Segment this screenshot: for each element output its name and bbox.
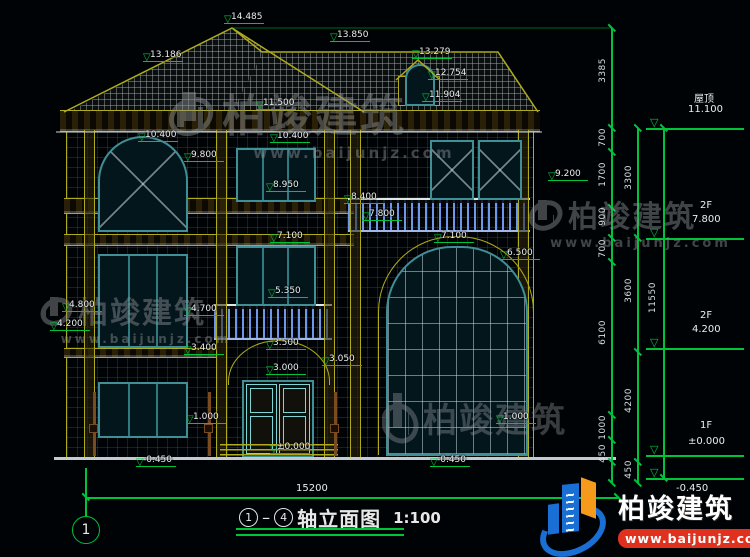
dim-marker: 3.500▽ xyxy=(266,338,306,350)
level-line xyxy=(646,128,744,130)
level-triangle-icon: ▽ xyxy=(412,50,420,59)
dim-chain-line xyxy=(663,128,665,478)
chain-dim-label: 1700 xyxy=(598,162,608,187)
dim-marker: 10.400▽ xyxy=(270,131,310,143)
chain-dim-label: 700 xyxy=(598,239,608,258)
chain-dim-label: 900 xyxy=(598,207,608,226)
axis-start-bubble: 1 xyxy=(239,508,258,527)
footer-brand-logo: 柏竣建筑 www.baijunjz.com xyxy=(538,477,750,557)
level-triangle-icon: ▽ xyxy=(548,172,556,181)
level-triangle-icon: ▽ xyxy=(270,445,278,454)
level-triangle-icon: ▽ xyxy=(224,15,232,24)
brand-bar-orange xyxy=(581,477,596,518)
level-triangle-icon: ▽ xyxy=(184,346,192,355)
level-name: 2F xyxy=(700,310,712,321)
watermark-logo-icon xyxy=(382,390,415,444)
dim-marker: -0.450▽ xyxy=(136,455,176,467)
watermark-brand: 柏竣建筑 xyxy=(423,393,567,442)
level-triangle-icon: ▽ xyxy=(434,234,442,243)
brand-bar-blue xyxy=(562,483,579,533)
level-triangle-icon: ▽ xyxy=(650,118,658,128)
door-panel xyxy=(250,388,273,413)
downspout-bracket xyxy=(89,424,98,433)
window-1f-left xyxy=(98,382,188,438)
level-triangle-icon: ▽ xyxy=(428,71,436,80)
dim-marker: 13.186▽ xyxy=(143,50,183,62)
dim-marker: 3.400▽ xyxy=(184,343,224,355)
dim-marker: 9.800▽ xyxy=(184,150,224,162)
title-scale: 1:100 xyxy=(393,509,441,527)
dim-marker: 7.100▽ xyxy=(434,231,474,243)
chain-dim-label: 4200 xyxy=(624,388,634,413)
dim-marker: 8.400▽ xyxy=(344,192,384,204)
level-line xyxy=(646,348,744,350)
axis-extension-line xyxy=(85,468,87,517)
watermark-brand: 柏竣建筑 xyxy=(222,80,406,144)
downspout-bracket xyxy=(204,424,213,433)
cad-elevation-drawing: 柏竣建筑 www.baijunjz.com 柏竣建筑 www.baijunjz.… xyxy=(0,0,750,557)
footer-brand-name: 柏竣建筑 xyxy=(618,487,750,526)
dim-marker: 13.850▽ xyxy=(330,30,370,42)
watermark-brand: 柏竣建筑 xyxy=(568,192,696,236)
downspout-bracket xyxy=(330,424,339,433)
title-dash: – xyxy=(262,508,270,527)
dim-chain-line xyxy=(637,128,639,483)
level-name: 1F xyxy=(700,420,712,431)
chain-dim-label: 1000 xyxy=(598,415,608,440)
dim-marker: 13.279▽ xyxy=(412,47,452,59)
dim-marker: 1.000▽ xyxy=(186,412,226,424)
level-triangle-icon: ▽ xyxy=(430,458,438,467)
dim-marker: 4.800▽ xyxy=(62,300,102,312)
dim-marker: 10.400▽ xyxy=(138,130,178,142)
dim-marker: 8.950▽ xyxy=(266,180,306,192)
level-value: 4.200 xyxy=(692,324,721,335)
door-panel xyxy=(283,388,306,413)
level-triangle-icon: ▽ xyxy=(268,289,276,298)
level-triangle-icon: ▽ xyxy=(422,93,430,102)
axis-number: 1 xyxy=(82,522,91,538)
level-triangle-icon: ▽ xyxy=(344,195,352,204)
chain-dim-label: 3600 xyxy=(624,278,634,303)
dim-marker: 14.485▽ xyxy=(224,12,264,24)
dim-marker: -0.450▽ xyxy=(430,455,470,467)
axis-end-bubble: 4 xyxy=(274,508,293,527)
dim-marker: 3.000▽ xyxy=(266,363,306,375)
level-triangle-icon: ▽ xyxy=(270,234,278,243)
dim-marker: 6.500▽ xyxy=(500,248,540,260)
chain-dim-label: 700 xyxy=(598,128,608,147)
brand-building-icon xyxy=(538,478,610,556)
chain-dim-label: 6100 xyxy=(598,320,608,345)
chain-dim-label: 11550 xyxy=(648,282,658,313)
chain-dim-label: 3300 xyxy=(624,165,634,190)
dim-chain-line xyxy=(611,28,613,483)
level-triangle-icon: ▽ xyxy=(256,101,264,110)
level-triangle-icon: ▽ xyxy=(266,341,274,350)
dim-marker: 3.050▽ xyxy=(322,354,362,366)
dim-marker: 7.100▽ xyxy=(270,231,310,243)
dim-marker: 1.000▽ xyxy=(496,412,536,424)
level-triangle-icon: ▽ xyxy=(650,228,658,238)
level-triangle-icon: ▽ xyxy=(650,338,658,348)
watermark: 柏竣建筑 www.baijunjz.com xyxy=(40,288,252,346)
title-underline xyxy=(236,528,404,536)
dim-marker: 7.800▽ xyxy=(362,209,402,221)
chain-dim-label: 450 xyxy=(598,444,608,463)
axis-bubble: 1 xyxy=(72,516,100,544)
level-triangle-icon: ▽ xyxy=(136,458,144,467)
level-triangle-icon: ▽ xyxy=(496,415,504,424)
cornice-7100 xyxy=(64,234,354,246)
level-line xyxy=(646,455,744,457)
level-triangle-icon: ▽ xyxy=(362,212,370,221)
dim-marker: ±0.000▽ xyxy=(270,442,310,454)
dim-marker: 5.350▽ xyxy=(268,286,308,298)
dim-marker: 4.700▽ xyxy=(184,304,224,316)
level-triangle-icon: ▽ xyxy=(266,366,274,375)
level-name: 2F xyxy=(700,200,712,211)
level-value: 7.800 xyxy=(692,214,721,225)
level-triangle-icon: ▽ xyxy=(184,153,192,162)
dim-marker: 12.754▽ xyxy=(428,68,468,80)
watermark: 柏竣建筑 xyxy=(382,390,567,456)
level-name: 屋顶 xyxy=(694,90,714,105)
dim-marker: 11.500▽ xyxy=(256,98,296,110)
chain-dim-label: 450 xyxy=(624,460,634,479)
watermark-url: www.baijunjz.com xyxy=(528,236,750,251)
level-triangle-icon: ▽ xyxy=(650,445,658,455)
level-triangle-icon: ▽ xyxy=(186,415,194,424)
total-width-dim: 15200 xyxy=(296,483,328,494)
dim-marker: 9.200▽ xyxy=(548,169,588,181)
level-triangle-icon: ▽ xyxy=(266,183,274,192)
level-value: 11.100 xyxy=(688,104,723,115)
watermark-logo-icon xyxy=(168,89,214,135)
pilaster xyxy=(350,130,361,458)
level-triangle-icon: ▽ xyxy=(330,33,338,42)
watermark-logo-icon xyxy=(528,198,560,230)
level-triangle-icon: ▽ xyxy=(322,357,330,366)
level-triangle-icon: ▽ xyxy=(184,307,192,316)
brand-bar-small xyxy=(548,503,559,535)
level-triangle-icon: ▽ xyxy=(138,133,146,142)
level-triangle-icon: ▽ xyxy=(500,251,508,260)
level-triangle-icon: ▽ xyxy=(50,322,58,331)
level-value: ±0.000 xyxy=(688,436,725,447)
level-triangle-icon: ▽ xyxy=(62,303,70,312)
level-triangle-icon: ▽ xyxy=(270,134,278,143)
chain-dim-label: 3385 xyxy=(598,58,608,83)
dim-marker: 4.200▽ xyxy=(50,319,90,331)
dim-marker: 11.904▽ xyxy=(422,90,462,102)
footer-brand-url: www.baijunjz.com xyxy=(618,529,750,548)
level-triangle-icon: ▽ xyxy=(143,53,151,62)
